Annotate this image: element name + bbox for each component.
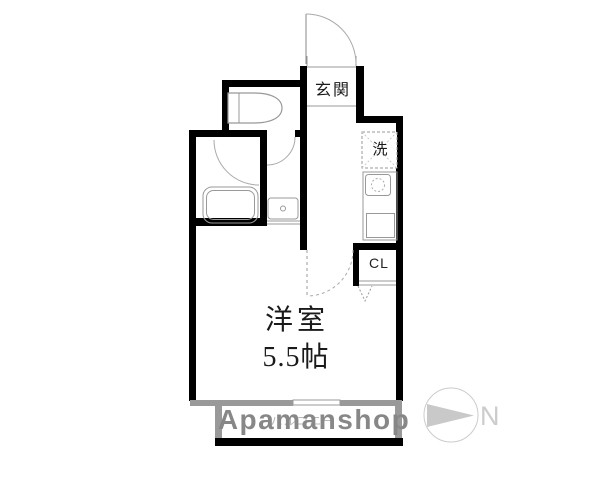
- north-label: N: [480, 401, 500, 432]
- room-door-swing-icon: [307, 250, 353, 296]
- closet-folding-door-icon: [358, 286, 372, 301]
- washroom-door-swing-arc: [267, 137, 295, 165]
- room-name-label: 洋室: [265, 298, 329, 338]
- watermark-logo: Apamanshop: [218, 404, 410, 436]
- washbasin-icon: [268, 198, 298, 219]
- stove-icon: [366, 175, 391, 196]
- floorplan: バルコニー Apamanshop 玄関 洗 CL 洋室 5.5帖 N: [0, 0, 600, 480]
- entrance-label: 玄関: [315, 76, 351, 100]
- compass-icon: [424, 388, 478, 442]
- room-size-label: 5.5帖: [262, 335, 329, 375]
- kitchen-sink-icon: [367, 214, 395, 238]
- toilet-icon: [228, 93, 282, 123]
- bathroom-door-swing-arc: [214, 140, 259, 185]
- kitchen-counter: [363, 172, 397, 240]
- bathtub-icon: [203, 187, 258, 223]
- washer-label: 洗: [372, 138, 387, 159]
- entrance-door-icon: [306, 14, 356, 64]
- closet-label: CL: [369, 255, 389, 271]
